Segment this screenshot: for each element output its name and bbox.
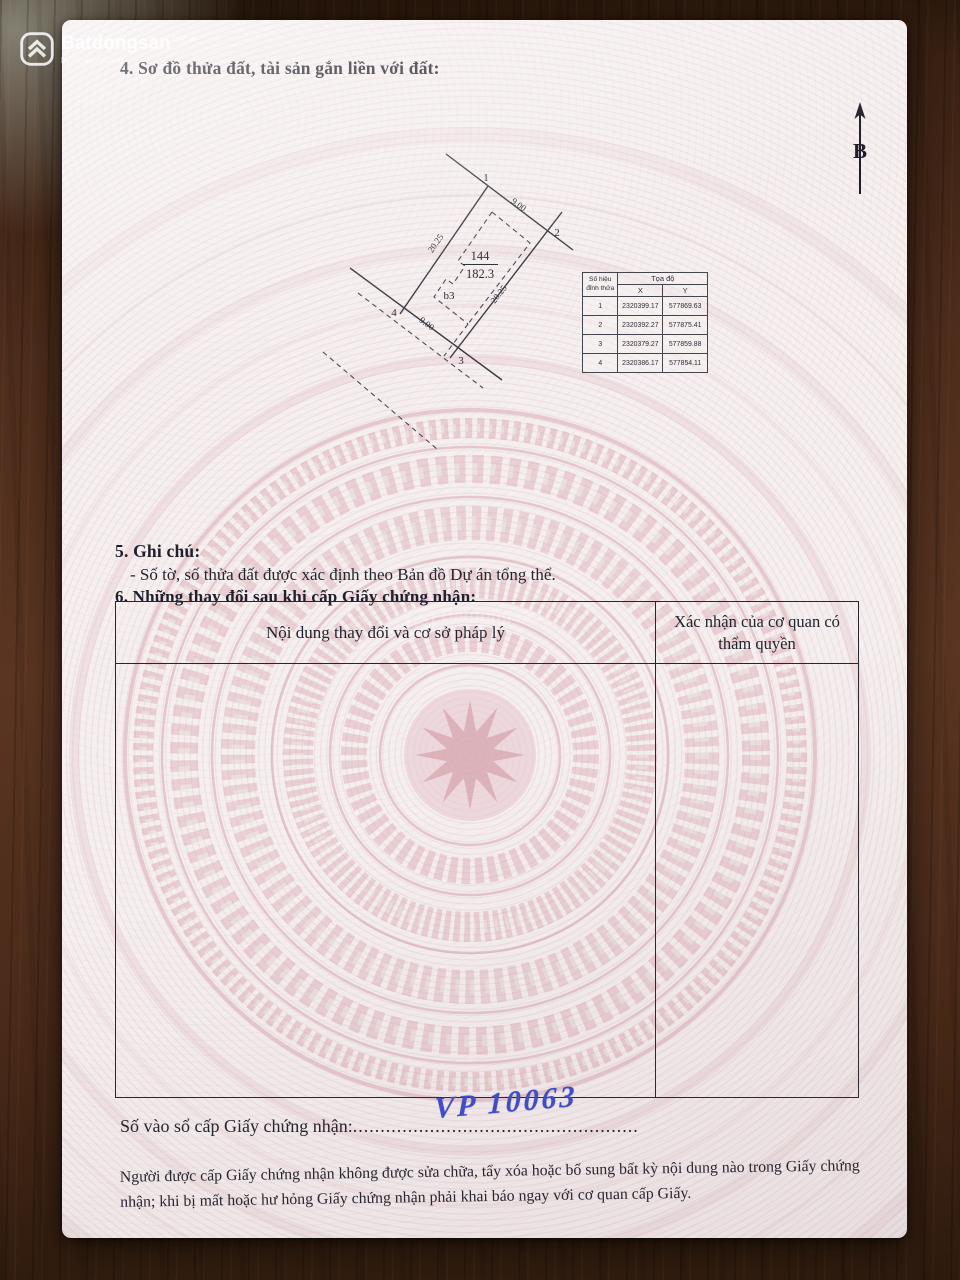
coord-col-vertex: Số hiệu đỉnh thửa: [583, 273, 618, 297]
coordinate-table: Số hiệu đỉnh thửa Tọa độ X Y 1 2320399.1…: [582, 272, 708, 373]
coord-x: 2320386.17: [618, 354, 663, 373]
coord-col-group: Tọa độ: [618, 273, 708, 285]
vertex-id: 3: [583, 335, 618, 354]
coord-x: 2320392.27: [618, 316, 663, 335]
section5-title: 5. Ghi chú:: [115, 541, 200, 562]
vertex-label-4: 4: [391, 307, 397, 319]
footer-warning-note: Người được cấp Giấy chứng nhận không đượ…: [120, 1154, 863, 1216]
north-label: B: [853, 139, 867, 163]
coord-row: 4 2320386.17 577854.11: [583, 354, 708, 373]
parcel-sketch: 1 2 3 4 9.00 20.25 20.25 9.00 144 182.3 …: [310, 150, 590, 470]
watermark-brand: Batdongsan: [441, 606, 542, 625]
registry-line: Số vào sổ cấp Giấy chứng nhận:..........…: [120, 1116, 639, 1137]
boundary-line-23: [450, 212, 562, 358]
coord-col-y: Y: [663, 285, 708, 297]
north-arrow: B: [842, 102, 878, 202]
photo-watermark-main: Batdongsancom.vn by PropertyGuru: [20, 32, 198, 66]
changes-cell-confirmation: [656, 664, 858, 1097]
watermark-tagline: by PropertyGuru: [61, 55, 198, 65]
coord-x: 2320379.27: [618, 335, 663, 354]
coord-row: 3 2320379.27 577859.88: [583, 335, 708, 354]
changes-table-body: [116, 664, 858, 1097]
batdongsan-logo-icon: [407, 608, 435, 636]
coord-y: 577869.63: [663, 297, 708, 316]
watermark-suffix: com.vn: [543, 608, 567, 616]
coord-y: 577854.11: [663, 354, 708, 373]
coord-col-x: X: [618, 285, 663, 297]
parcel-area: 182.3: [466, 267, 494, 281]
registry-label: Số vào sổ cấp Giấy chứng nhận:: [120, 1116, 353, 1136]
vertex-id: 4: [583, 354, 618, 373]
watermark-suffix: com.vn: [172, 34, 198, 43]
changes-col1-header: Nội dung thay đổi và cơ sở pháp lý: [116, 602, 656, 663]
coord-x: 2320399.17: [618, 297, 663, 316]
parcel-number: 144: [471, 249, 491, 263]
road-dashed-line-2: [323, 352, 437, 449]
vertex-id: 2: [583, 316, 618, 335]
changes-cell-content: [116, 664, 656, 1097]
batdongsan-logo-icon: [20, 32, 54, 66]
certificate-page: 4. Sơ đồ thửa đất, tài sản gắn liền với …: [62, 20, 907, 1238]
inner-label-b3: b3: [444, 290, 456, 302]
coord-y: 577875.41: [663, 316, 708, 335]
vertex-label-2: 2: [554, 227, 560, 239]
vertex-label-3: 3: [458, 355, 464, 367]
photo-watermark-center: Batdongsancom.vn by PropertyGuru: [407, 607, 567, 636]
changes-col2-header: Xác nhận của cơ quan có thẩm quyền: [656, 602, 858, 663]
vertex-id: 1: [583, 297, 618, 316]
watermark-brand: Batdongsan: [61, 33, 171, 54]
coord-row: 2 2320392.27 577875.41: [583, 316, 708, 335]
watermark-tagline: by PropertyGuru: [441, 627, 567, 636]
edge-length-12: 9.00: [510, 196, 529, 214]
vertex-label-1: 1: [483, 172, 489, 184]
section5-note: - Số tờ, số thửa đất được xác định theo …: [130, 565, 556, 585]
coord-row: 1 2320399.17 577869.63: [583, 297, 708, 316]
coord-y: 577859.88: [663, 335, 708, 354]
changes-table: Nội dung thay đổi và cơ sở pháp lý Xác n…: [115, 601, 859, 1098]
